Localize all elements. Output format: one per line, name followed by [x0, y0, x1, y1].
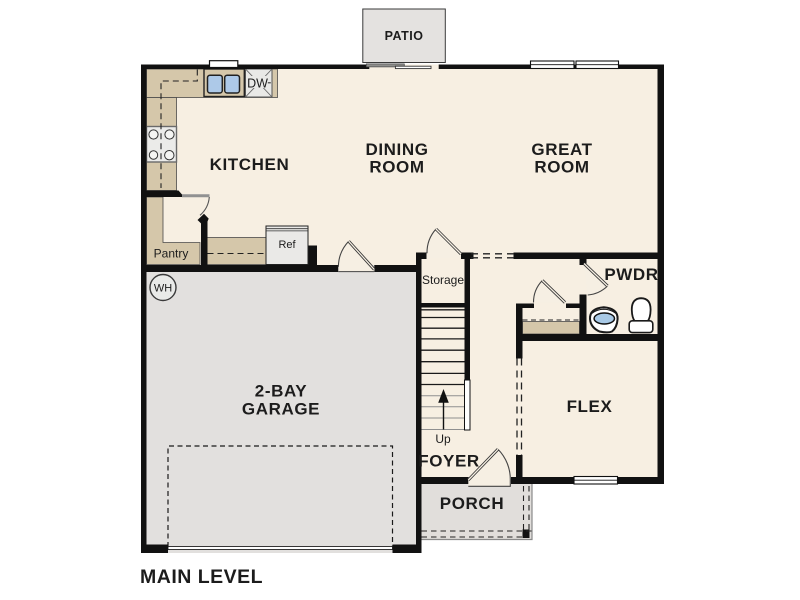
- svg-text:Ref: Ref: [278, 239, 296, 251]
- svg-text:FOYER: FOYER: [418, 452, 480, 471]
- svg-text:FLEX: FLEX: [567, 397, 613, 416]
- svg-text:KITCHEN: KITCHEN: [210, 155, 290, 174]
- svg-text:ROOM: ROOM: [369, 158, 424, 177]
- svg-text:GREAT: GREAT: [531, 140, 592, 159]
- svg-text:PATIO: PATIO: [385, 29, 424, 43]
- svg-text:DINING: DINING: [365, 140, 428, 159]
- svg-text:DW: DW: [247, 77, 268, 91]
- svg-text:Storage: Storage: [422, 273, 464, 287]
- svg-text:2-BAY: 2-BAY: [255, 382, 308, 401]
- svg-text:PWDR: PWDR: [604, 265, 658, 284]
- svg-text:Up: Up: [435, 432, 451, 446]
- svg-text:GARAGE: GARAGE: [242, 400, 320, 419]
- svg-text:WH: WH: [154, 283, 172, 295]
- svg-text:MAIN LEVEL: MAIN LEVEL: [140, 566, 263, 588]
- svg-text:Pantry: Pantry: [154, 247, 189, 261]
- svg-text:PORCH: PORCH: [440, 494, 504, 513]
- svg-text:ROOM: ROOM: [534, 158, 589, 177]
